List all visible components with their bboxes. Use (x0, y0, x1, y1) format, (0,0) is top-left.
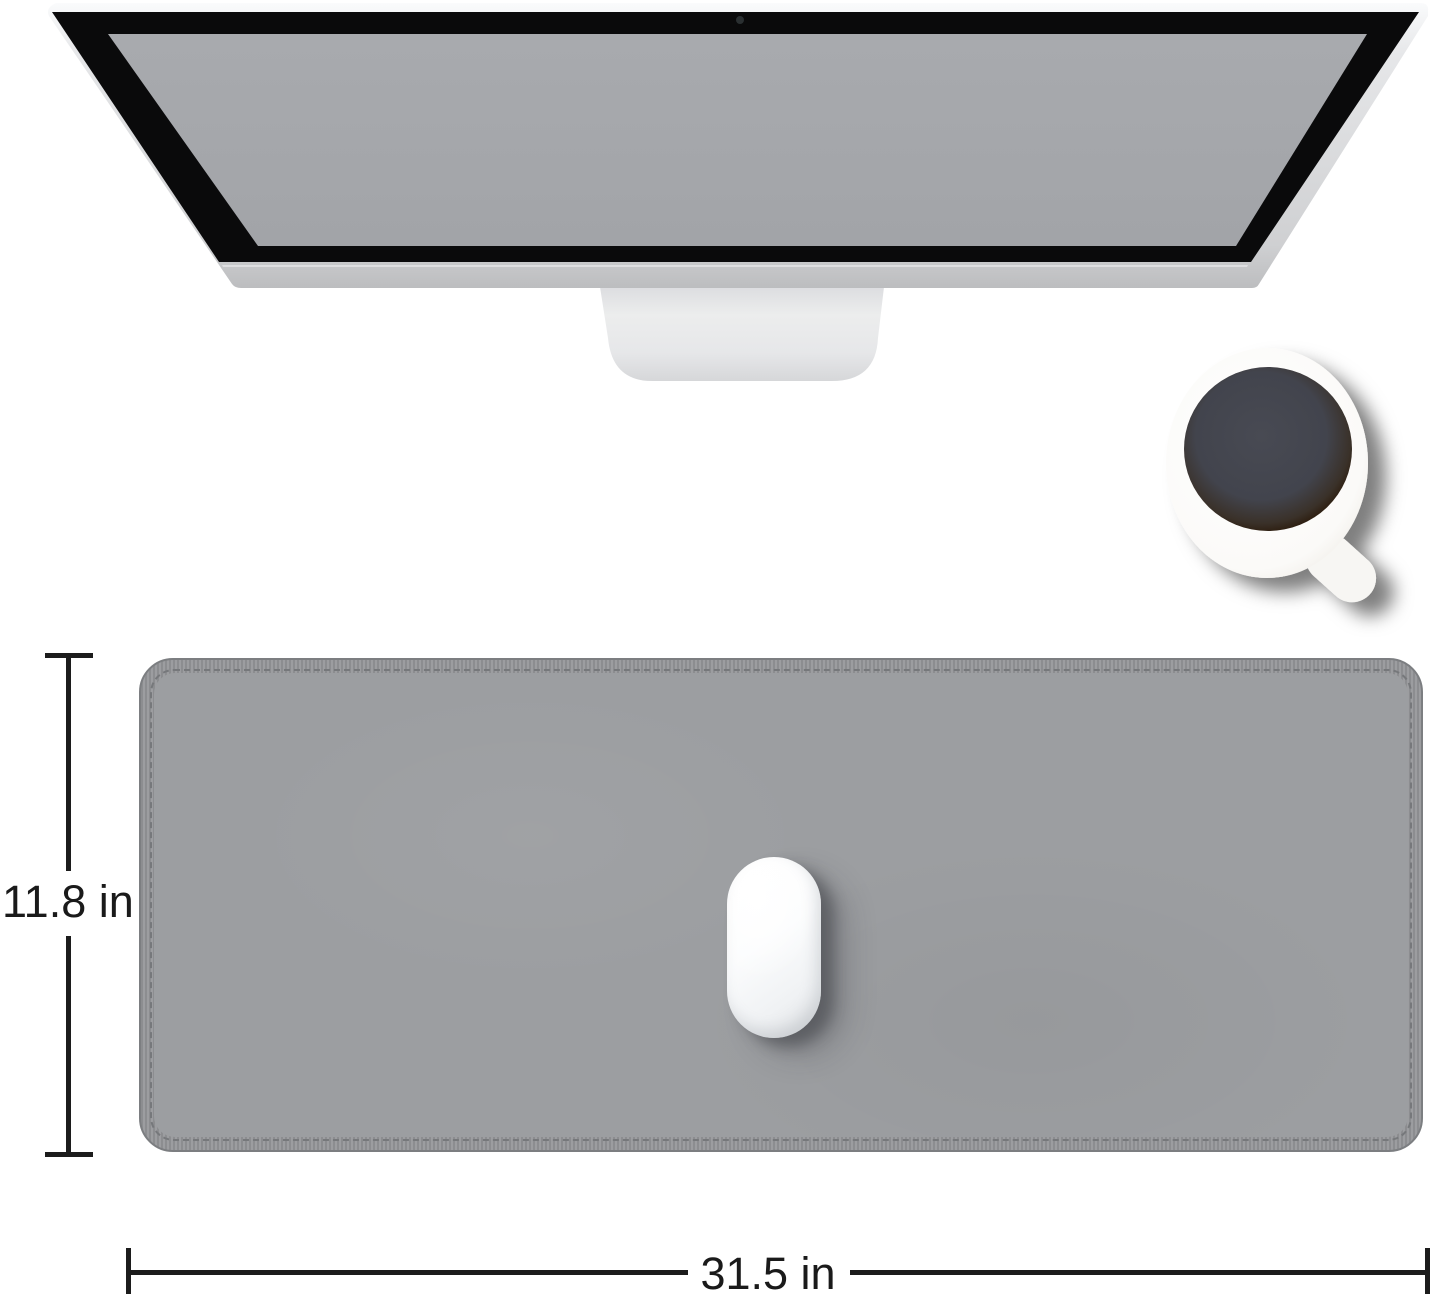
width-dimension-label: 31.5 in (697, 1251, 839, 1296)
height-dimension-cap-bottom (45, 1152, 93, 1157)
height-dimension-line-lower (66, 936, 71, 1155)
width-dimension-line-left (126, 1270, 688, 1275)
monitor-screen (108, 34, 1367, 246)
coffee-surface (1184, 367, 1352, 531)
webcam-icon (736, 16, 744, 24)
chin-seam (222, 265, 1248, 267)
height-dimension-label: 11.8 in (2, 879, 128, 924)
width-dimension-line-right (850, 1270, 1430, 1275)
coffee-cup (1110, 325, 1430, 645)
monitor-stand (600, 287, 884, 381)
height-dimension-line-upper (66, 653, 71, 871)
mouse (727, 857, 821, 1038)
product-dimension-illustration: 11.8 in 31.5 in (0, 0, 1437, 1296)
width-dimension-cap-right (1425, 1248, 1430, 1294)
